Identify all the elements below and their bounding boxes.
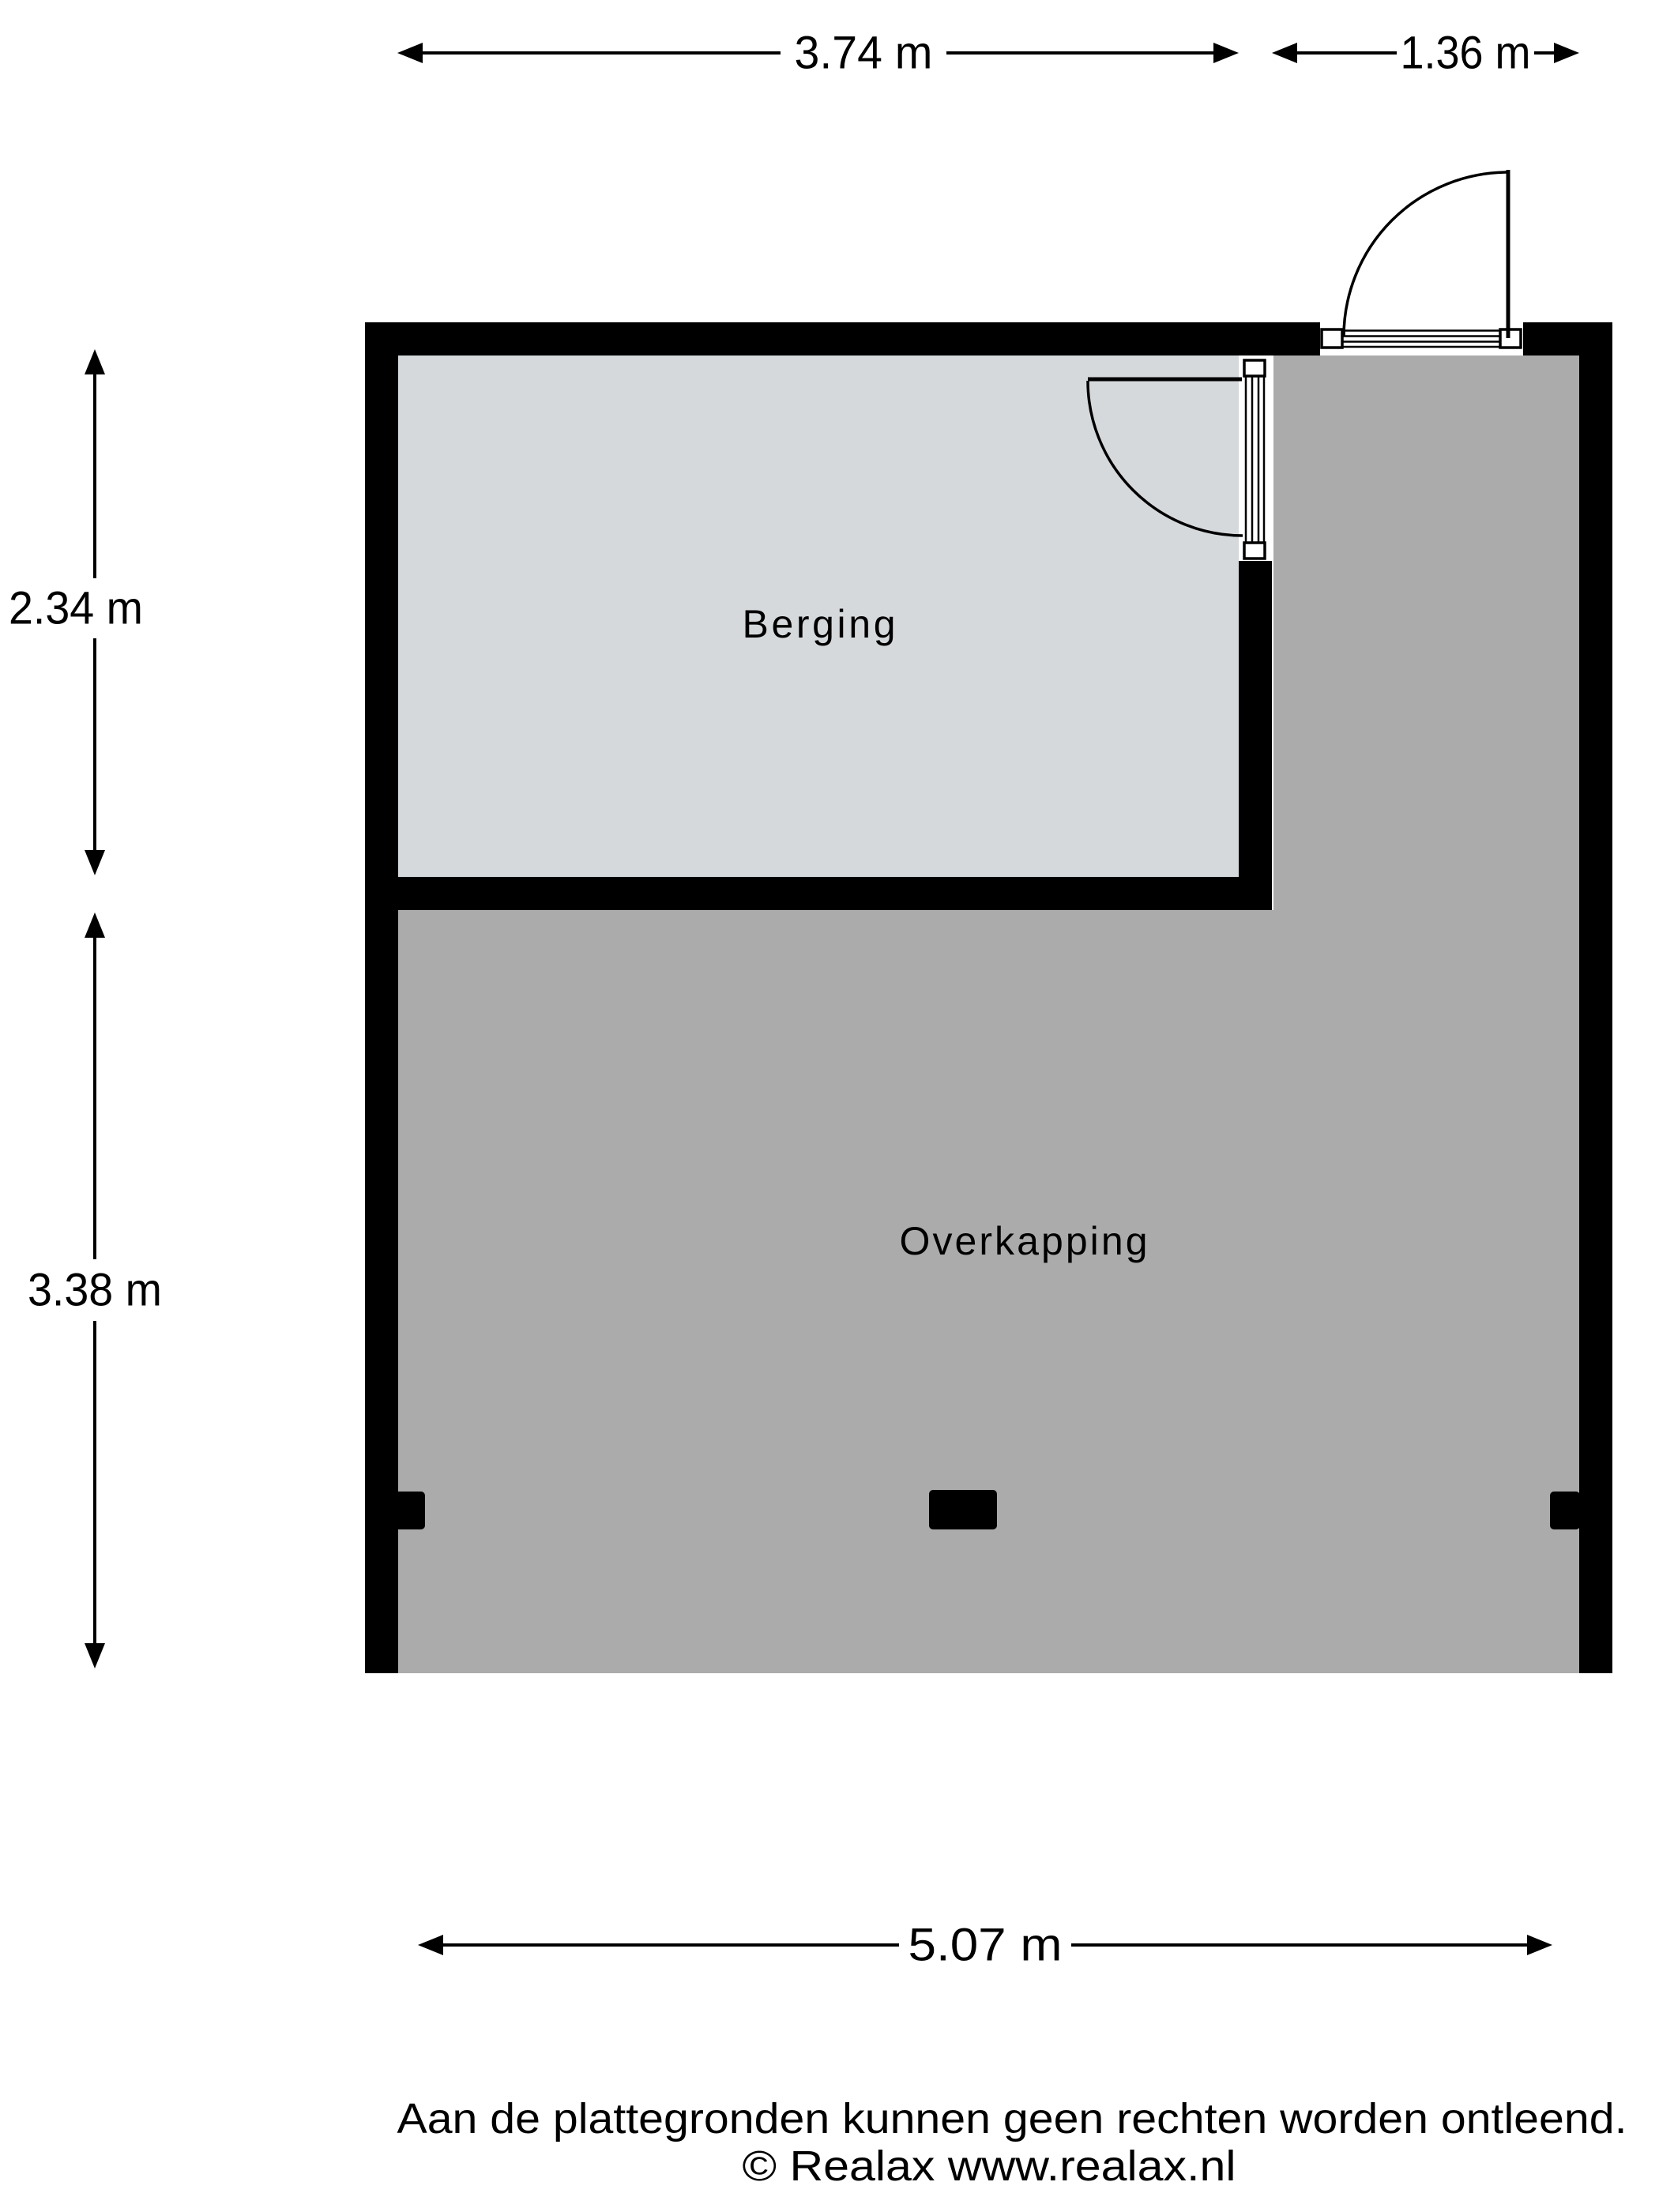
interior-door-frame-top [1244, 360, 1265, 376]
overkapping-floor-lower [398, 910, 1579, 1673]
berging-south-wall [365, 877, 1272, 910]
arrowhead-down [85, 1643, 105, 1668]
dimension-overkapping-height: 3.38 m [28, 912, 162, 1668]
arrowhead-left [418, 1935, 443, 1955]
dimension-bottom-width: 5.07 m [418, 1920, 1552, 1971]
exterior-door-frame-left [1322, 329, 1342, 348]
berging-east-wall [1239, 561, 1272, 910]
arrowhead-down [85, 850, 105, 875]
wall-top-left-segment [365, 322, 1320, 355]
dimension-label: 3.74 m [795, 28, 933, 79]
post-right [1550, 1492, 1580, 1529]
overkapping-floor-upper [1273, 355, 1579, 910]
arrowhead-right [1527, 1935, 1552, 1955]
arrowhead-right [1213, 43, 1239, 63]
dimension-label: 2.34 m [9, 583, 143, 634]
dimension-label: 5.07 m [908, 1920, 1063, 1971]
arrowhead-left [1272, 43, 1297, 63]
dimension-overkapping-top-width: 1.36 m [1272, 28, 1579, 79]
room-label-overkapping: Overkapping [900, 1219, 1149, 1263]
dimension-berging-width: 3.74 m [397, 28, 1239, 79]
arrowhead-left [397, 43, 423, 63]
arrowhead-up [85, 912, 105, 938]
wall-top-right-segment [1523, 322, 1612, 355]
exterior-door-frame-right [1500, 329, 1521, 348]
arrowhead-up [85, 349, 105, 374]
copyright-text: © Realax www.realax.nl [743, 2142, 1236, 2190]
disclaimer-text: Aan de plattegronden kunnen geen rechten… [397, 2095, 1627, 2142]
dimension-label: 1.36 m [1401, 28, 1531, 79]
post-center [929, 1490, 997, 1529]
interior-door-frame-bottom [1244, 543, 1265, 559]
floorplan-page: 3.74 m 1.36 m 2.34 m 3.38 m 5.07 m Bergi… [0, 0, 1659, 2212]
exterior-door-swing-arc [1344, 172, 1508, 337]
wall-left [365, 322, 398, 1673]
dimension-berging-height: 2.34 m [9, 349, 143, 875]
exterior-door [1322, 170, 1521, 348]
wall-right [1579, 322, 1612, 1673]
room-label-berging: Berging [743, 602, 897, 646]
arrowhead-right [1554, 43, 1579, 63]
dimension-label: 3.38 m [28, 1265, 162, 1316]
post-left [395, 1492, 425, 1529]
floorplan-canvas: 3.74 m 1.36 m 2.34 m 3.38 m 5.07 m Bergi… [0, 0, 1659, 2212]
